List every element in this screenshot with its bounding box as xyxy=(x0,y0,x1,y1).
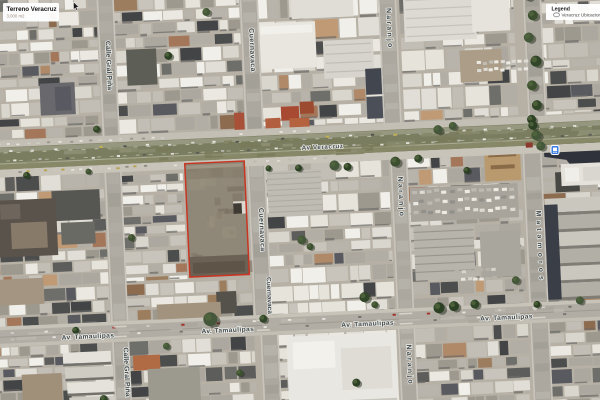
svg-text:3,000 m2: 3,000 m2 xyxy=(7,14,26,19)
svg-text:Legend: Legend xyxy=(552,7,570,13)
svg-text:Veracruz Ubicacion: Veracruz Ubicacion xyxy=(562,13,600,18)
svg-text:Terreno Veracruz: Terreno Veracruz xyxy=(7,6,57,13)
